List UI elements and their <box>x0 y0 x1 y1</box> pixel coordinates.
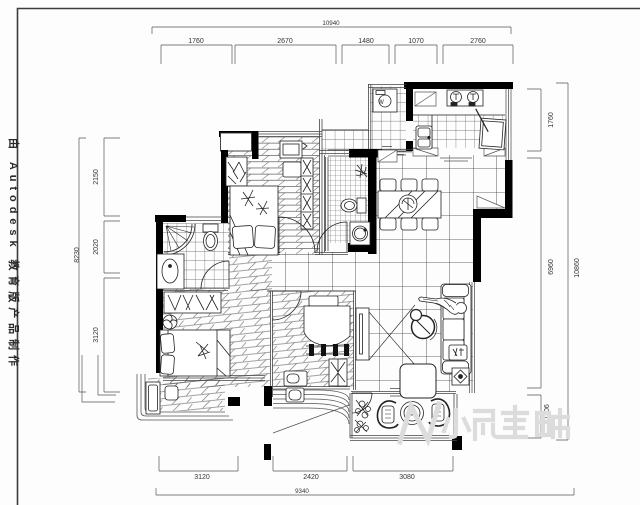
svg-text:2020: 2020 <box>93 239 100 255</box>
svg-text:1480: 1480 <box>358 38 374 45</box>
svg-text:1760: 1760 <box>188 38 204 45</box>
svg-text:3120: 3120 <box>93 327 100 343</box>
svg-text:2760: 2760 <box>470 38 486 45</box>
svg-text:2670: 2670 <box>277 38 293 45</box>
svg-text:2420: 2420 <box>303 474 319 481</box>
svg-text:2150: 2150 <box>93 169 100 185</box>
svg-text:1760: 1760 <box>548 112 555 128</box>
svg-text:1070: 1070 <box>408 38 424 45</box>
svg-text:3080: 3080 <box>399 474 415 481</box>
svg-text:10860: 10860 <box>574 258 581 278</box>
svg-text:10940: 10940 <box>322 20 340 27</box>
svg-text:6960: 6960 <box>548 259 555 275</box>
svg-text:9340: 9340 <box>295 488 309 495</box>
svg-text:W: W <box>378 100 384 106</box>
svg-text:3120: 3120 <box>194 474 210 481</box>
svg-text:8230: 8230 <box>74 247 81 263</box>
